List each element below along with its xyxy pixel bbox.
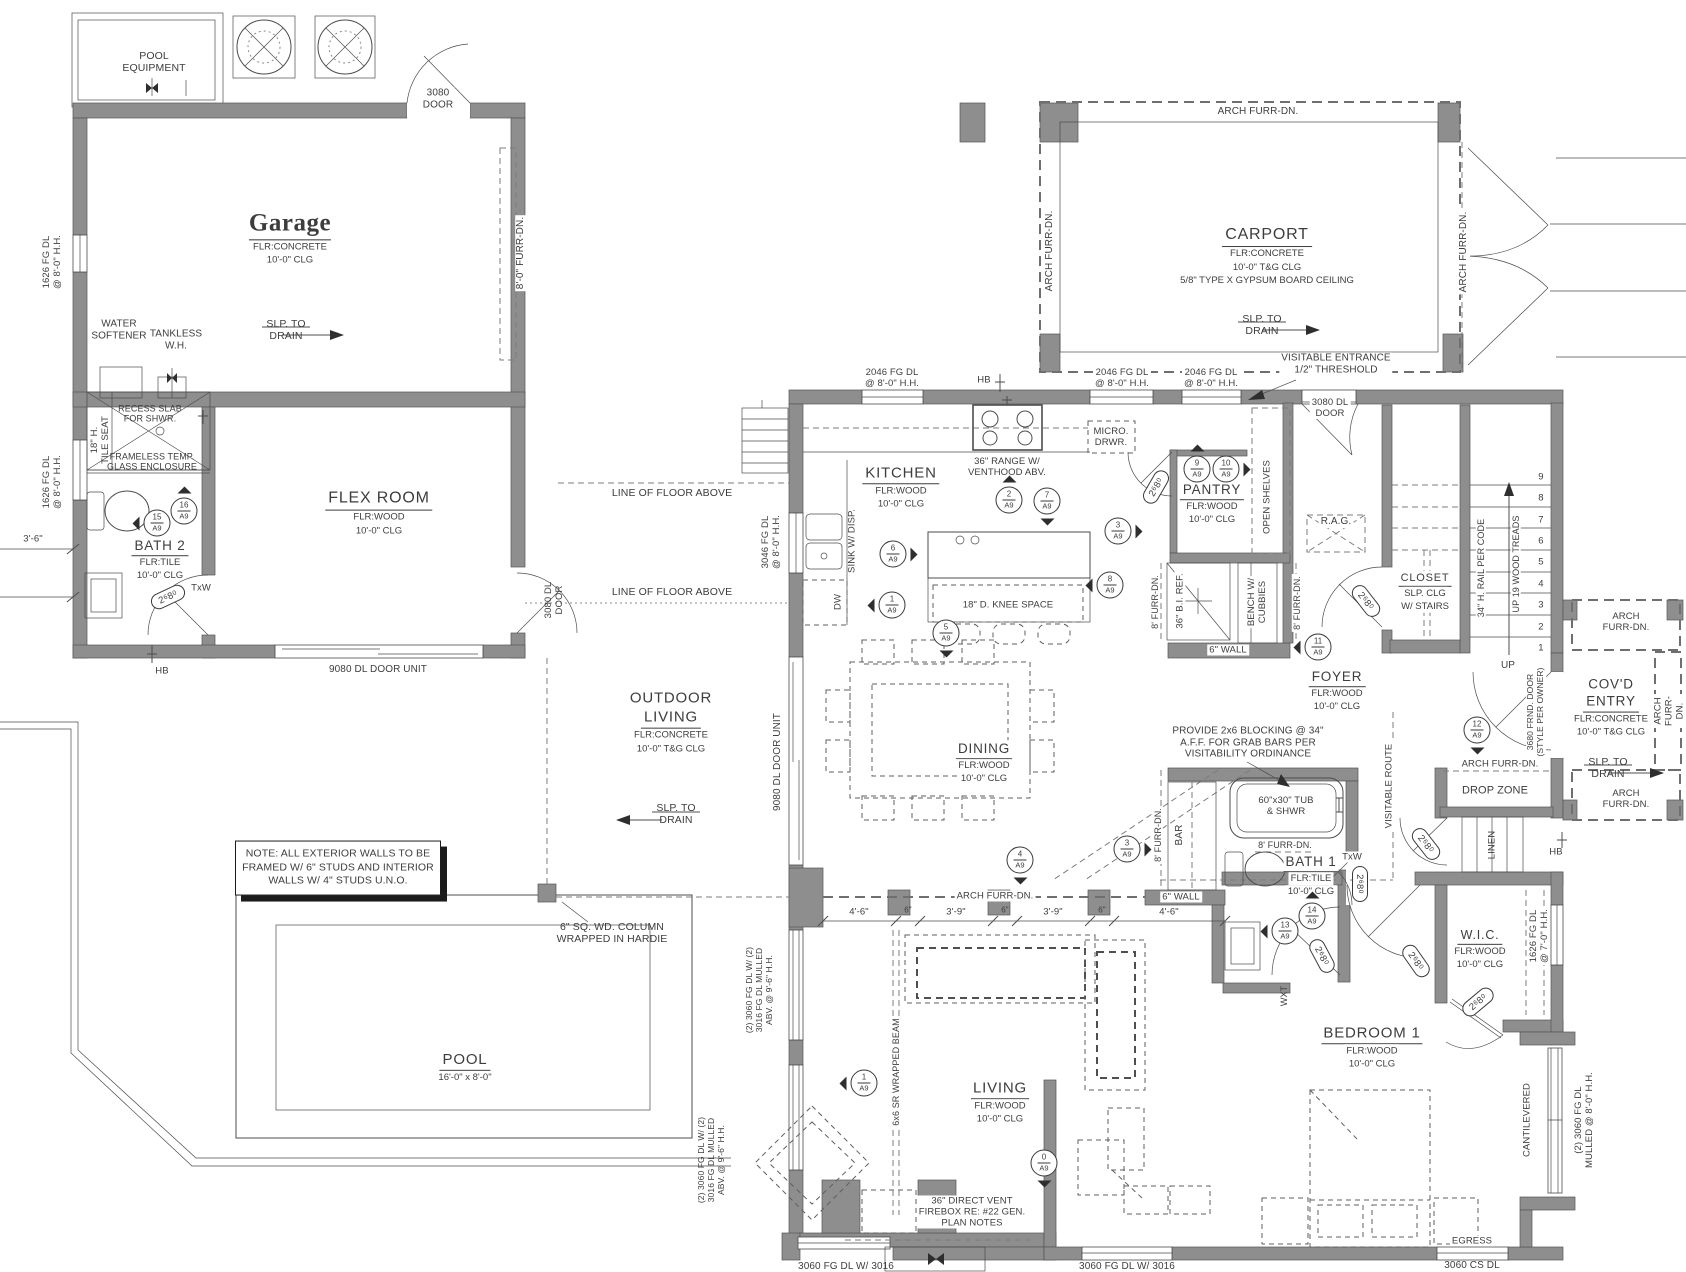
bath2-hb-label: HB [155, 665, 168, 676]
room-foyer: FOYERFLR:WOOD10'-0" CLG [1309, 668, 1366, 714]
water-softener-label: WATER SOFTENER [91, 318, 146, 341]
marker-1-living-sheet: A9 [859, 1084, 868, 1093]
room-bath1-line-0: FLR:TILE [1289, 872, 1334, 885]
entry-hb-label: HB [1549, 846, 1562, 857]
bath1-furr-label: 8' FURR-DN. [1256, 840, 1314, 850]
glass-enclosure-label: FRAMELESS TEMP. GLASS ENCLOSURE [107, 452, 197, 473]
marker-pointer-up [1305, 892, 1319, 899]
marker-3-kitchen-sheet: A9 [1113, 532, 1122, 541]
room-outdoor-living-name: OUTDOOR [627, 689, 715, 708]
foyer-arch-label: ARCH FURR-DN. [1460, 758, 1541, 769]
door-unit-9080-label-v: 9080 DL DOOR UNIT [772, 713, 784, 811]
carport-arch-label-left: ARCH FURR-DN. [1044, 209, 1056, 294]
dim-6-b: 6" [1001, 905, 1009, 914]
marker-4: 4A9 [1007, 847, 1034, 874]
marker-pointer-right [1244, 462, 1251, 476]
front-door-label: 3680 FRND. DOOR (STYLE PER OWNER) [1526, 665, 1546, 758]
marker-1-kitchen: 1A9 [879, 592, 906, 619]
bar-furr-label: 8' FURR-DN. [1153, 806, 1163, 864]
marker-pointer-left [840, 1076, 847, 1090]
dim-4-6-a: 4'-6" [849, 906, 868, 917]
room-bath2-name: BATH 2 [131, 537, 188, 556]
living-window-label-1: 3060 FG DL W/ 3016 [798, 1261, 894, 1272]
carport-arch-label-top: ARCH FURR-DN. [1216, 106, 1301, 118]
marker-2-sheet: A9 [1004, 501, 1013, 510]
carport-slope-label: SLP. TO DRAIN [1242, 313, 1281, 337]
marker-15-sheet: A9 [152, 524, 161, 533]
room-closet-line-1: W/ STAIRS [1399, 600, 1451, 613]
marker-1-kitchen-sheet: A9 [887, 606, 896, 615]
fridge-label: 36" B.I. REF. [1174, 571, 1185, 630]
walls-layer [73, 103, 1683, 1260]
marker-12-sheet: A9 [1472, 731, 1481, 740]
marker-pointer-left [1261, 924, 1268, 938]
bar-label: BAR [1174, 825, 1186, 846]
visitable-entrance-label: VISITABLE ENTRANCE 1/2" THRESHOLD [1279, 352, 1392, 375]
marker-pointer-left [1086, 578, 1093, 592]
room-bath2-line-0: FLR:TILE [140, 556, 181, 569]
marker-pointer-down [939, 651, 953, 658]
marker-pointer-up [1002, 476, 1016, 483]
marker-8-sheet: A9 [1105, 586, 1114, 595]
rag-label: R.A.G. [1319, 516, 1354, 528]
stair-tread-2: 2 [1536, 621, 1545, 632]
room-closet-name: CLOSET [1399, 571, 1452, 587]
marker-1-kitchen-num: 1 [886, 596, 899, 606]
outdoor-slope-label: SLP. TO DRAIN [656, 802, 695, 826]
room-outdoor-living-name2: LIVING [641, 708, 701, 729]
marker-11-num: 11 [1312, 638, 1325, 648]
room-carport-line-1: 10'-0" T&G CLG [1233, 261, 1301, 274]
sink-label: SINK W/ DISP. [846, 509, 857, 573]
marker-14-num: 14 [1306, 907, 1319, 917]
line-floor-above-1: LINE OF FLOOR ABOVE [610, 487, 734, 499]
blocking-note: PROVIDE 2x6 BLOCKING @ 34" A.F.F. FOR GR… [1172, 726, 1323, 761]
line-floor-above-2: LINE OF FLOOR ABOVE [610, 586, 734, 598]
room-kitchen-name: KITCHEN [862, 463, 939, 484]
dim-6-a: 6" [904, 905, 912, 914]
firebox-note: 36" DIRECT VENT FIREBOX RE: #22 GEN. PLA… [917, 1195, 1028, 1228]
marker-7-num: 7 [1041, 492, 1054, 502]
room-flex-name: FLEX ROOM [325, 489, 432, 511]
room-closet: CLOSETSLP. CLGW/ STAIRS [1399, 571, 1452, 613]
room-dining-line-0: FLR:WOOD [956, 759, 1011, 772]
wic-window-label: 1626 FG DL @ 7'-0" H.H. [1528, 907, 1550, 965]
room-covd-entry: COV'DENTRYFLR:CONCRETE10'-0" T&G CLG [1574, 676, 1648, 739]
marker-3-dining: 3A9 [1114, 836, 1141, 863]
covd-arch-label-top: ARCH FURR-DN. [1601, 611, 1652, 633]
garage-furr-label: 8'-0" FURR-DN. [515, 215, 527, 291]
marker-12-num: 12 [1471, 721, 1484, 731]
room-pool-name: POOL [440, 1050, 491, 1071]
beam-label: 6x6 SR WRAPPED BEAM [891, 1016, 901, 1127]
drop-zone-label: DROP ZONE [1462, 785, 1528, 798]
room-bedroom1-line-1: 10'-0" CLG [1347, 1058, 1397, 1071]
room-wic-name: W.I.C. [1458, 927, 1503, 945]
marker-13-sheet: A9 [1280, 932, 1289, 941]
covd-arch-label-bottom: ARCH FURR-DN. [1601, 788, 1652, 810]
room-pool-line-0: 16'-0" x 8'-0" [438, 1071, 491, 1084]
marker-3-kitchen-num: 3 [1112, 522, 1125, 532]
room-kitchen: KITCHENFLR:WOOD10'-0" CLG [862, 463, 939, 511]
floor-plan: GarageFLR:CONCRETE10'-0" CLGFLEX ROOMFLR… [0, 0, 1686, 1272]
stair-tread-4: 4 [1536, 578, 1545, 589]
marker-12: 12A9 [1464, 717, 1491, 744]
marker-6: 6A9 [880, 541, 907, 568]
window-2046-label-2: 2046 FG DL @ 8'-0" H.H. [1093, 367, 1151, 389]
fridge-furr-label: 8' FURR-DN. [1150, 573, 1160, 631]
dim-3-9-b: 3'-9" [1043, 906, 1062, 917]
marker-3-kitchen: 3A9 [1105, 518, 1132, 545]
fixtures-layer [85, 367, 1523, 1271]
room-covd-entry-name2: ENTRY [1583, 693, 1639, 712]
room-kitchen-line-0: FLR:WOOD [875, 484, 926, 497]
covd-slope-label: SLP. TO DRAIN [1588, 756, 1627, 780]
room-pantry-line-0: FLR:WOOD [1186, 500, 1237, 513]
mulled-window-label-1: (2) 3060 FG DL W/ (2) 3016 FG DL MULLED … [745, 947, 775, 1033]
garage-door-label: 3080 DOOR [421, 87, 455, 110]
marker-pointer-up [177, 487, 191, 494]
cantilevered-label: CANTILEVERED [1521, 1081, 1532, 1159]
room-garage: GarageFLR:CONCRETE10'-0" CLG [249, 207, 331, 266]
marker-3-dining-num: 3 [1121, 840, 1134, 850]
rail-label: 34" H. RAIL PER CODE [1476, 517, 1486, 619]
marker-9-num: 9 [1191, 460, 1204, 470]
mulled-window-label-2: (2) 3060 FG DL W/ (2) 3016 FG DL MULLED … [697, 1117, 727, 1203]
marker-5-sheet: A9 [941, 634, 950, 643]
room-carport-line-2: 5/8" TYPE X GYPSUM BOARD CEILING [1180, 274, 1354, 287]
micro-drawer-label: MICRO. DRWR. [1092, 426, 1131, 448]
foyer-door-label: 3080 DL DOOR [1310, 397, 1351, 419]
marker-pointer-down [1040, 519, 1054, 526]
marker-9-sheet: A9 [1192, 470, 1201, 479]
room-bath2-line-1: 10'-0" CLG [137, 570, 183, 583]
room-closet-line-0: SLP. CLG [1402, 587, 1448, 600]
bath2-txw-label: TxW [191, 582, 211, 593]
marker-2-num: 2 [1003, 491, 1016, 501]
bedroom-window-label: 3060 CS DL [1444, 1260, 1499, 1272]
bath1-txw-label: TxW [1340, 851, 1364, 862]
garage-slope-label: SLP. TO DRAIN [266, 318, 305, 342]
room-garage-name: Garage [249, 207, 331, 240]
marker-5-num: 5 [940, 624, 953, 634]
marker-13: 13A9 [1272, 918, 1299, 945]
room-living: LIVINGFLR:WOOD10'-0" CLG [971, 1078, 1029, 1126]
marker-14: 14A9 [1299, 903, 1326, 930]
column-note: 6" SQ. WD. COLUMN WRAPPED IN HARDIE [557, 921, 668, 945]
marker-6-num: 6 [887, 545, 900, 555]
dim-6-c: 6" [1098, 905, 1106, 914]
tile-seat-label: 18" H. TILE SEAT [89, 416, 111, 464]
room-pool: POOL16'-0" x 8'-0" [438, 1050, 491, 1084]
bench-label: BENCH W/ CUBBIES [1246, 576, 1268, 628]
bench-furr-label: 8' FURR-DN. [1292, 574, 1302, 632]
room-foyer-line-1: 10'-0" CLG [1314, 701, 1360, 714]
marker-1-living-num: 1 [858, 1074, 871, 1084]
room-pantry-name: PANTRY [1180, 481, 1244, 500]
marker-16-num: 16 [178, 502, 191, 512]
marker-pointer-right [911, 547, 918, 561]
marker-6-sheet: A9 [888, 555, 897, 564]
tankless-wh-label: TANKLESS W.H. [150, 328, 202, 351]
marker-0-num: 0 [1038, 1154, 1051, 1164]
room-outdoor-living: OUTDOORLIVINGFLR:CONCRETE10'-0" T&G CLG [627, 689, 715, 756]
garage-window-label-2: 1626 FG DL @ 8'-0" H.H. [41, 455, 63, 509]
linen-label: LINEN [1486, 831, 1497, 859]
marker-1-living: 1A9 [851, 1070, 878, 1097]
door-unit-9080-label: 9080 DL DOOR UNIT [329, 664, 427, 676]
marker-5: 5A9 [933, 620, 960, 647]
room-flex-line-1: 10'-0" CLG [356, 524, 402, 537]
room-kitchen-line-1: 10'-0" CLG [878, 498, 924, 511]
furniture-layer [755, 640, 1478, 1247]
room-covd-entry-name: COV'D [1585, 676, 1637, 693]
marker-14-sheet: A9 [1307, 917, 1316, 926]
room-outdoor-living-line-1: 10'-0" T&G CLG [637, 742, 705, 755]
room-garage-line-0: FLR:CONCRETE [253, 240, 327, 253]
stair-tread-1: 1 [1536, 642, 1545, 653]
room-wic-line-1: 10'-0" CLG [1457, 958, 1503, 971]
marker-15-num: 15 [151, 514, 164, 524]
recess-slab-label: RECESS SLAB FOR SHWR. [118, 404, 182, 425]
room-flex-line-0: FLR:WOOD [353, 511, 404, 524]
roof-fans [233, 16, 375, 78]
bath1-wall-label: 6" WALL [1160, 891, 1202, 902]
marker-16: 16A9 [171, 498, 198, 525]
marker-4-num: 4 [1014, 851, 1027, 861]
marker-11: 11A9 [1305, 634, 1332, 661]
pantry-wall-label: 6" WALL [1207, 644, 1249, 655]
stair-tread-8: 8 [1536, 492, 1545, 503]
marker-10-sheet: A9 [1221, 470, 1230, 479]
treads-label: UP 19 WOOD TREADS [1511, 514, 1521, 615]
marker-8: 8A9 [1097, 572, 1124, 599]
room-foyer-line-0: FLR:WOOD [1311, 687, 1362, 700]
room-dining-name: DINING [956, 740, 1012, 759]
room-carport: CARPORTFLR:CONCRETE10'-0" T&G CLG5/8" TY… [1180, 225, 1354, 287]
marker-4-sheet: A9 [1015, 861, 1024, 870]
stair-tread-6: 6 [1536, 535, 1545, 546]
open-shelves-label: OPEN SHELVES [1261, 458, 1272, 536]
marker-13-num: 13 [1279, 922, 1292, 932]
room-foyer-name: FOYER [1309, 668, 1366, 687]
dw-label: DW [832, 594, 843, 610]
room-bedroom1-name: BEDROOM 1 [1321, 1023, 1422, 1044]
marker-pointer-up [1190, 445, 1204, 452]
room-bath1-name: BATH 1 [1283, 853, 1338, 872]
wxt-label: WXT [1279, 986, 1289, 1006]
window-2046-label-3: 2046 FG DL @ 8'-0" H.H. [1182, 367, 1240, 389]
room-living-line-1: 10'-0" CLG [975, 1113, 1025, 1126]
living-arch-label: ARCH FURR-DN. [955, 890, 1036, 901]
dim-4-6-b: 4'-6" [1159, 906, 1178, 917]
window-2046-label-1: 2046 FG DL @ 8'-0" H.H. [863, 367, 921, 389]
marker-9: 9A9 [1184, 456, 1211, 483]
room-outdoor-living-line-0: FLR:CONCRETE [634, 729, 708, 742]
visitable-route-label: VISITABLE ROUTE [1383, 742, 1394, 831]
room-living-name: LIVING [971, 1078, 1029, 1099]
marker-8-num: 8 [1104, 576, 1117, 586]
covd-arch-label-right: ARCH FURR-DN. [1652, 694, 1685, 728]
marker-7: 7A9 [1034, 488, 1061, 515]
room-wic: W.I.C.FLR:WOOD10'-0" CLG [1454, 927, 1505, 971]
stair-tread-7: 7 [1536, 514, 1545, 525]
marker-pointer-down [1470, 748, 1484, 755]
knee-space-label: 18" D. KNEE SPACE [961, 599, 1055, 610]
marker-2: 2A9 [996, 487, 1023, 514]
room-wic-line-0: FLR:WOOD [1454, 945, 1505, 958]
room-pantry-line-1: 10'-0" CLG [1189, 514, 1235, 527]
marker-pointer-left [1294, 640, 1301, 654]
marker-pointer-down [1037, 1181, 1051, 1188]
dim-3-9-a: 3'-9" [946, 906, 965, 917]
marker-10: 10A9 [1213, 456, 1240, 483]
marker-16-sheet: A9 [179, 512, 188, 521]
egress-label: EGRESS [1450, 1235, 1494, 1246]
flex-door-label: 3080 DL DOOR [543, 582, 565, 619]
marker-0-sheet: A9 [1039, 1164, 1048, 1173]
room-carport-line-0: FLR:CONCRETE [1230, 248, 1304, 261]
room-bedroom1: BEDROOM 1FLR:WOOD10'-0" CLG [1321, 1023, 1422, 1071]
tub-label: 60"x30" TUB & SHWR [1258, 795, 1313, 817]
room-bath2: BATH 2FLR:TILE10'-0" CLG [131, 537, 188, 583]
room-carport-name: CARPORT [1222, 225, 1312, 247]
stair-tread-9: 9 [1536, 471, 1545, 482]
marker-pointer-right [1145, 842, 1152, 856]
room-dining-line-1: 10'-0" CLG [959, 773, 1009, 786]
room-bedroom1-line-0: FLR:WOOD [1344, 1044, 1399, 1057]
exterior-walls-note: NOTE: ALL EXTERIOR WALLS TO BE FRAMED W/… [235, 841, 441, 896]
up-label: UP [1501, 660, 1515, 672]
carport-arch-label-right: ARCH FURR-DN. [1458, 210, 1470, 295]
living-window-label-2: 3060 FG DL W/ 3016 [1079, 1261, 1175, 1272]
room-pantry: PANTRYFLR:WOOD10'-0" CLG [1180, 481, 1244, 527]
door-tag-bath1: 2680 [1352, 866, 1368, 902]
kitchen-hb-label: HB [977, 374, 990, 385]
marker-10-num: 10 [1220, 460, 1233, 470]
room-dining: DININGFLR:WOOD10'-0" CLG [956, 740, 1012, 786]
room-flex: FLEX ROOMFLR:WOOD10'-0" CLG [325, 489, 432, 538]
room-covd-entry-line-1: 10'-0" T&G CLG [1577, 725, 1645, 738]
room-living-line-0: FLR:WOOD [972, 1099, 1027, 1112]
marker-7-sheet: A9 [1042, 502, 1051, 511]
marker-pointer-right [1136, 524, 1143, 538]
marker-pointer-left [868, 598, 875, 612]
room-covd-entry-line-0: FLR:CONCRETE [1574, 712, 1648, 725]
marker-pointer-down [1013, 878, 1027, 885]
marker-pointer-left [133, 516, 140, 530]
stair-tread-3: 3 [1536, 599, 1545, 610]
stair-tread-5: 5 [1536, 556, 1545, 567]
marker-15: 15A9 [144, 510, 171, 537]
room-garage-line-1: 10'-0" CLG [267, 254, 313, 267]
pool-equipment-label: POOL EQUIPMENT [122, 50, 185, 74]
marker-3-dining-sheet: A9 [1122, 850, 1131, 859]
dim-3-6: 3'-6" [23, 533, 42, 544]
kitchen-window-label: 3046 FG DL @ 8'-0" H.H. [760, 515, 782, 569]
marker-11-sheet: A9 [1313, 648, 1322, 657]
bay-window-label: (2) 3060 FG DL MULLED @ 8'-0" H.H. [1573, 1072, 1595, 1168]
garage-window-label-1: 1626 FG DL @ 8'-0" H.H. [41, 235, 63, 289]
marker-0: 0A9 [1031, 1150, 1058, 1177]
